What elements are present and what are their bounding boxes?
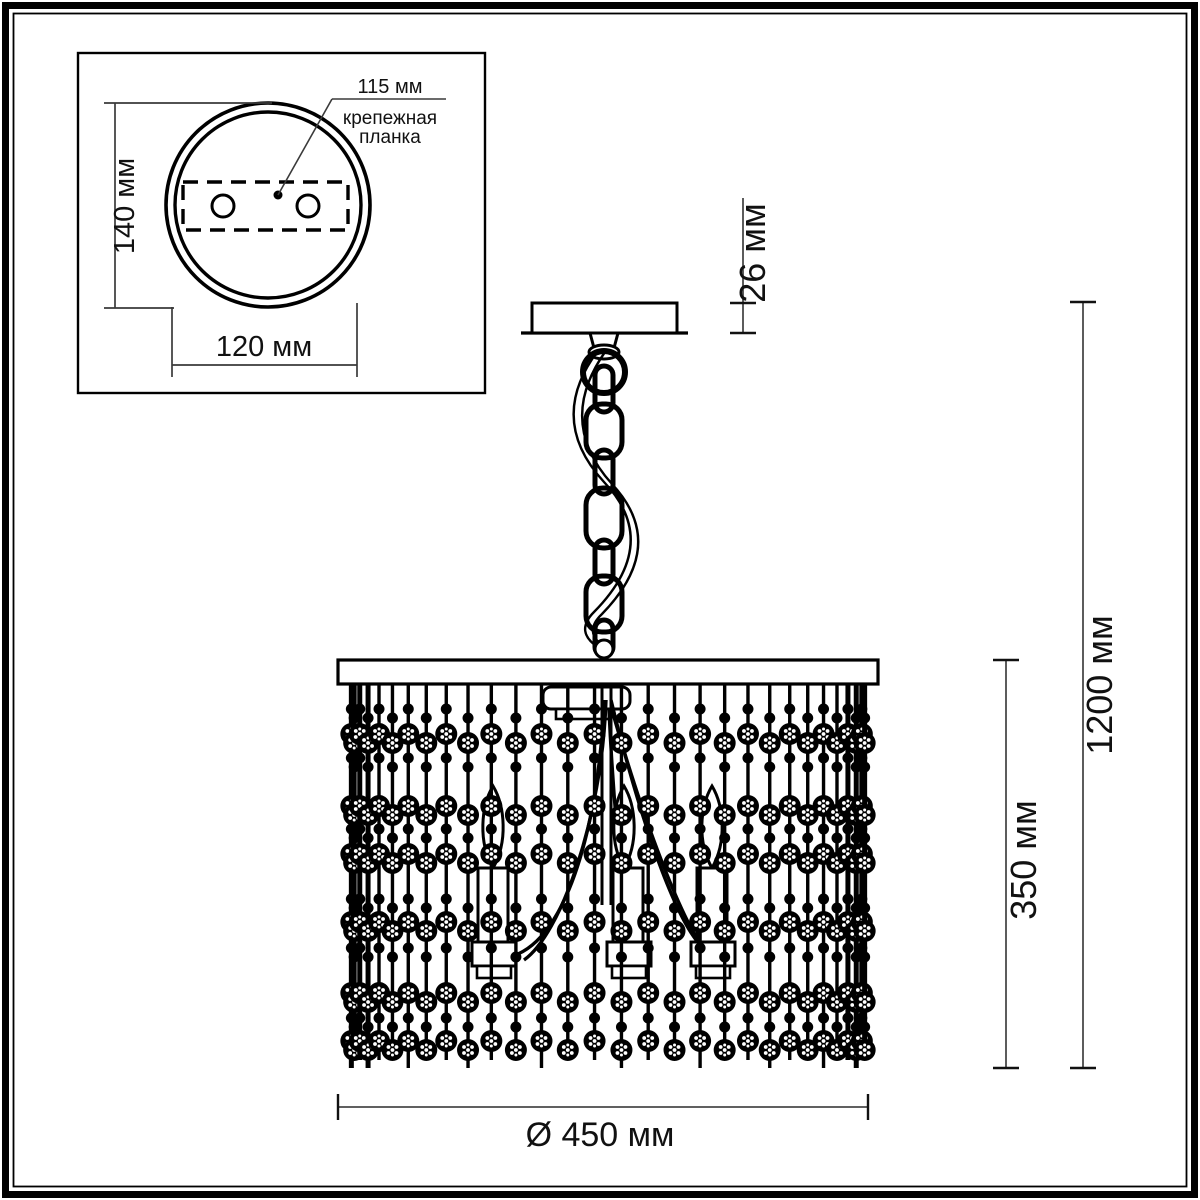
large-faceted-bead xyxy=(759,1039,781,1061)
chandelier-dimension-drawing: 115 мм крепежная планка 140 мм 120 мм xyxy=(0,0,1200,1200)
small-bead xyxy=(831,833,842,844)
large-faceted-bead xyxy=(415,852,437,874)
large-faceted-bead xyxy=(610,1039,632,1061)
small-bead xyxy=(486,824,497,835)
small-bead xyxy=(616,952,627,963)
small-bead xyxy=(802,952,813,963)
bracket-caption-line1: крепежная xyxy=(343,108,437,129)
small-bead xyxy=(842,894,853,905)
small-bead xyxy=(764,713,775,724)
small-bead xyxy=(719,762,730,773)
small-bead xyxy=(510,833,521,844)
large-faceted-bead xyxy=(759,732,781,754)
small-bead xyxy=(859,1022,870,1033)
large-faceted-bead xyxy=(480,843,502,865)
small-bead xyxy=(859,833,870,844)
large-faceted-bead xyxy=(854,1039,876,1061)
large-faceted-bead xyxy=(637,723,659,745)
small-bead xyxy=(831,713,842,724)
small-bead xyxy=(695,824,706,835)
large-faceted-bead xyxy=(480,982,502,1004)
small-bead xyxy=(387,762,398,773)
large-faceted-bead xyxy=(737,723,759,745)
large-faceted-bead xyxy=(854,852,876,874)
large-faceted-bead xyxy=(435,982,457,1004)
large-faceted-bead xyxy=(557,1039,579,1061)
shade-height-label: 350 мм xyxy=(1003,800,1044,920)
large-faceted-bead xyxy=(637,982,659,1004)
small-bead xyxy=(486,1013,497,1024)
large-faceted-bead xyxy=(689,795,711,817)
small-bead xyxy=(441,824,452,835)
small-bead xyxy=(589,894,600,905)
small-bead xyxy=(831,952,842,963)
small-bead xyxy=(643,894,654,905)
large-faceted-bead xyxy=(530,723,552,745)
small-bead xyxy=(842,1013,853,1024)
large-faceted-bead xyxy=(689,982,711,1004)
small-bead xyxy=(486,943,497,954)
small-bead xyxy=(831,1022,842,1033)
large-faceted-bead xyxy=(584,795,606,817)
small-bead xyxy=(421,713,432,724)
large-faceted-bead xyxy=(714,852,736,874)
small-bead xyxy=(784,704,795,715)
large-faceted-bead xyxy=(584,982,606,1004)
small-bead xyxy=(387,713,398,724)
small-bead xyxy=(562,903,573,914)
small-bead xyxy=(374,1013,385,1024)
large-faceted-bead xyxy=(714,991,736,1013)
small-bead xyxy=(510,903,521,914)
large-faceted-bead xyxy=(584,911,606,933)
small-bead xyxy=(536,753,547,764)
large-faceted-bead xyxy=(530,911,552,933)
small-bead xyxy=(536,704,547,715)
small-bead xyxy=(818,894,829,905)
small-bead xyxy=(562,713,573,724)
large-faceted-bead xyxy=(689,723,711,745)
small-bead xyxy=(589,1013,600,1024)
small-bead xyxy=(510,713,521,724)
large-faceted-bead xyxy=(415,1039,437,1061)
small-bead xyxy=(764,952,775,963)
small-bead xyxy=(669,1022,680,1033)
small-bead xyxy=(486,704,497,715)
small-bead xyxy=(669,952,680,963)
small-bead xyxy=(421,952,432,963)
large-faceted-bead xyxy=(505,804,527,826)
large-faceted-bead xyxy=(714,804,736,826)
small-bead xyxy=(441,704,452,715)
total-height-label: 1200 мм xyxy=(1079,615,1120,755)
small-bead xyxy=(695,704,706,715)
small-bead xyxy=(643,753,654,764)
small-bead xyxy=(643,1013,654,1024)
large-faceted-bead xyxy=(637,795,659,817)
small-bead xyxy=(363,713,374,724)
small-bead xyxy=(859,762,870,773)
small-bead xyxy=(403,824,414,835)
large-faceted-bead xyxy=(480,911,502,933)
large-faceted-bead xyxy=(610,732,632,754)
small-bead xyxy=(463,762,474,773)
small-bead xyxy=(374,753,385,764)
small-bead xyxy=(562,762,573,773)
large-faceted-bead xyxy=(854,991,876,1013)
small-bead xyxy=(354,894,365,905)
small-bead xyxy=(363,903,374,914)
small-bead xyxy=(742,704,753,715)
large-faceted-bead xyxy=(737,982,759,1004)
bead-strand xyxy=(737,684,759,1060)
large-faceted-bead xyxy=(505,732,527,754)
small-bead xyxy=(536,943,547,954)
canopy-height-dimension: 26 мм xyxy=(730,198,773,333)
diameter-label: Ø 450 мм xyxy=(526,1116,675,1154)
small-bead xyxy=(536,894,547,905)
small-bead xyxy=(536,824,547,835)
large-faceted-bead xyxy=(480,723,502,745)
small-bead xyxy=(463,1022,474,1033)
small-bead xyxy=(616,762,627,773)
small-bead xyxy=(463,713,474,724)
plate-height-label: 140 мм xyxy=(109,158,141,254)
large-faceted-bead xyxy=(584,843,606,865)
large-faceted-bead xyxy=(435,795,457,817)
small-bead xyxy=(589,943,600,954)
small-bead xyxy=(441,1013,452,1024)
large-faceted-bead xyxy=(854,920,876,942)
plate-width-label: 120 мм xyxy=(216,331,312,363)
large-faceted-bead xyxy=(610,920,632,942)
small-bead xyxy=(784,753,795,764)
small-bead xyxy=(695,753,706,764)
large-faceted-bead xyxy=(714,732,736,754)
small-bead xyxy=(669,903,680,914)
large-faceted-bead xyxy=(664,804,686,826)
small-bead xyxy=(486,753,497,764)
large-faceted-bead xyxy=(854,732,876,754)
small-bead xyxy=(842,943,853,954)
small-bead xyxy=(616,1022,627,1033)
small-bead xyxy=(486,894,497,905)
pendant-drawing xyxy=(338,303,878,1068)
small-bead xyxy=(818,704,829,715)
small-bead xyxy=(441,943,452,954)
small-bead xyxy=(831,762,842,773)
small-bead xyxy=(643,943,654,954)
large-faceted-bead xyxy=(530,1030,552,1052)
small-bead xyxy=(643,704,654,715)
large-faceted-bead xyxy=(689,1030,711,1052)
small-bead xyxy=(562,1022,573,1033)
large-faceted-bead xyxy=(457,920,479,942)
large-faceted-bead xyxy=(714,1039,736,1061)
small-bead xyxy=(441,753,452,764)
large-faceted-bead xyxy=(530,843,552,865)
bead-strand xyxy=(457,684,479,1068)
small-bead xyxy=(818,1013,829,1024)
small-bead xyxy=(562,833,573,844)
large-faceted-bead xyxy=(664,852,686,874)
large-faceted-bead xyxy=(505,920,527,942)
small-bead xyxy=(354,824,365,835)
small-bead xyxy=(669,833,680,844)
bead-strand xyxy=(759,684,781,1068)
small-bead xyxy=(842,753,853,764)
large-faceted-bead xyxy=(714,920,736,942)
small-bead xyxy=(742,824,753,835)
small-bead xyxy=(818,753,829,764)
small-bead xyxy=(784,1013,795,1024)
screw-hole-right xyxy=(297,195,319,217)
large-faceted-bead xyxy=(610,852,632,874)
small-bead xyxy=(363,1022,374,1033)
large-faceted-bead xyxy=(737,911,759,933)
large-faceted-bead xyxy=(415,732,437,754)
small-bead xyxy=(616,833,627,844)
large-faceted-bead xyxy=(557,804,579,826)
small-bead xyxy=(354,1013,365,1024)
small-bead xyxy=(784,943,795,954)
large-faceted-bead xyxy=(759,804,781,826)
small-bead xyxy=(562,952,573,963)
small-bead xyxy=(374,894,385,905)
large-faceted-bead xyxy=(637,1030,659,1052)
large-faceted-bead xyxy=(689,911,711,933)
large-faceted-bead xyxy=(457,732,479,754)
large-faceted-bead xyxy=(435,911,457,933)
large-faceted-bead xyxy=(557,920,579,942)
large-faceted-bead xyxy=(505,1039,527,1061)
large-faceted-bead xyxy=(737,1030,759,1052)
small-bead xyxy=(802,713,813,724)
small-bead xyxy=(403,894,414,905)
small-bead xyxy=(354,704,365,715)
large-faceted-bead xyxy=(415,991,437,1013)
large-faceted-bead xyxy=(457,852,479,874)
large-faceted-bead xyxy=(854,804,876,826)
small-bead xyxy=(669,713,680,724)
small-bead xyxy=(802,1022,813,1033)
small-bead xyxy=(363,952,374,963)
small-bead xyxy=(784,824,795,835)
small-bead xyxy=(802,903,813,914)
small-bead xyxy=(536,1013,547,1024)
small-bead xyxy=(421,762,432,773)
ceiling-canopy xyxy=(532,303,677,333)
small-bead xyxy=(354,753,365,764)
small-bead xyxy=(463,903,474,914)
large-faceted-bead xyxy=(480,795,502,817)
suspension-wire xyxy=(574,352,639,648)
large-faceted-bead xyxy=(557,991,579,1013)
large-faceted-bead xyxy=(530,982,552,1004)
drawing-page: 115 мм крепежная планка 140 мм 120 мм xyxy=(0,0,1200,1200)
small-bead xyxy=(742,894,753,905)
small-bead xyxy=(764,903,775,914)
large-faceted-bead xyxy=(737,795,759,817)
large-faceted-bead xyxy=(689,843,711,865)
large-faceted-bead xyxy=(435,1030,457,1052)
diameter-dimension: Ø 450 мм xyxy=(338,1094,868,1154)
bracket-width-label: 115 мм xyxy=(358,76,423,98)
small-bead xyxy=(421,833,432,844)
small-bead xyxy=(421,1022,432,1033)
canopy-height-label: 26 мм xyxy=(732,203,773,303)
small-bead xyxy=(510,952,521,963)
large-faceted-bead xyxy=(610,804,632,826)
small-bead xyxy=(842,824,853,835)
small-bead xyxy=(387,952,398,963)
inset-panel: 115 мм крепежная планка 140 мм 120 мм xyxy=(78,53,485,393)
large-faceted-bead xyxy=(457,991,479,1013)
large-faceted-bead xyxy=(759,852,781,874)
small-bead xyxy=(669,762,680,773)
large-faceted-bead xyxy=(664,991,686,1013)
small-bead xyxy=(719,903,730,914)
small-bead xyxy=(764,833,775,844)
small-bead xyxy=(510,762,521,773)
small-bead xyxy=(764,1022,775,1033)
small-bead xyxy=(818,824,829,835)
large-faceted-bead xyxy=(584,1030,606,1052)
small-bead xyxy=(719,952,730,963)
small-bead xyxy=(463,833,474,844)
small-bead xyxy=(742,1013,753,1024)
small-bead xyxy=(695,943,706,954)
large-faceted-bead xyxy=(557,852,579,874)
small-bead xyxy=(589,753,600,764)
shade-height-dimension: 350 мм xyxy=(993,660,1044,1068)
small-bead xyxy=(589,824,600,835)
small-bead xyxy=(374,943,385,954)
small-bead xyxy=(374,704,385,715)
total-height-dimension: 1200 мм xyxy=(1070,302,1120,1068)
small-bead xyxy=(643,824,654,835)
screw-hole-left xyxy=(212,195,234,217)
small-bead xyxy=(859,952,870,963)
small-bead xyxy=(802,833,813,844)
large-faceted-bead xyxy=(415,920,437,942)
bead-curtain xyxy=(340,684,875,1068)
small-bead xyxy=(589,704,600,715)
small-bead xyxy=(403,753,414,764)
small-bead xyxy=(784,894,795,905)
small-bead xyxy=(742,753,753,764)
small-bead xyxy=(695,1013,706,1024)
large-faceted-bead xyxy=(637,843,659,865)
large-faceted-bead xyxy=(457,804,479,826)
large-faceted-bead xyxy=(480,1030,502,1052)
large-faceted-bead xyxy=(759,920,781,942)
bead-strand xyxy=(415,684,437,1061)
small-bead xyxy=(403,704,414,715)
large-faceted-bead xyxy=(759,991,781,1013)
large-faceted-bead xyxy=(664,1039,686,1061)
large-faceted-bead xyxy=(737,843,759,865)
small-bead xyxy=(616,713,627,724)
small-bead xyxy=(374,824,385,835)
small-bead xyxy=(831,903,842,914)
small-bead xyxy=(859,713,870,724)
large-faceted-bead xyxy=(637,911,659,933)
large-faceted-bead xyxy=(664,732,686,754)
small-bead xyxy=(510,1022,521,1033)
large-faceted-bead xyxy=(557,732,579,754)
large-faceted-bead xyxy=(505,991,527,1013)
large-faceted-bead xyxy=(435,843,457,865)
small-bead xyxy=(403,1013,414,1024)
small-bead xyxy=(842,704,853,715)
small-bead xyxy=(387,833,398,844)
small-bead xyxy=(764,762,775,773)
large-faceted-bead xyxy=(435,723,457,745)
large-faceted-bead xyxy=(415,804,437,826)
large-faceted-bead xyxy=(610,991,632,1013)
bead-strand xyxy=(435,684,457,1060)
small-bead xyxy=(387,903,398,914)
small-bead xyxy=(463,952,474,963)
small-bead xyxy=(719,833,730,844)
bead-strand xyxy=(530,684,552,1068)
large-faceted-bead xyxy=(584,723,606,745)
small-bead xyxy=(421,903,432,914)
shade-top-plate xyxy=(338,660,878,684)
small-bead xyxy=(363,762,374,773)
small-bead xyxy=(441,894,452,905)
small-bead xyxy=(695,894,706,905)
small-bead xyxy=(742,943,753,954)
small-bead xyxy=(719,1022,730,1033)
small-bead xyxy=(818,943,829,954)
small-bead xyxy=(354,943,365,954)
small-bead xyxy=(403,943,414,954)
large-faceted-bead xyxy=(457,1039,479,1061)
small-bead xyxy=(616,903,627,914)
large-faceted-bead xyxy=(505,852,527,874)
small-bead xyxy=(719,713,730,724)
small-bead xyxy=(387,1022,398,1033)
large-faceted-bead xyxy=(664,920,686,942)
bracket-caption-line2: планка xyxy=(359,127,421,148)
large-faceted-bead xyxy=(530,795,552,817)
small-bead xyxy=(363,833,374,844)
small-bead xyxy=(802,762,813,773)
small-bead xyxy=(859,903,870,914)
